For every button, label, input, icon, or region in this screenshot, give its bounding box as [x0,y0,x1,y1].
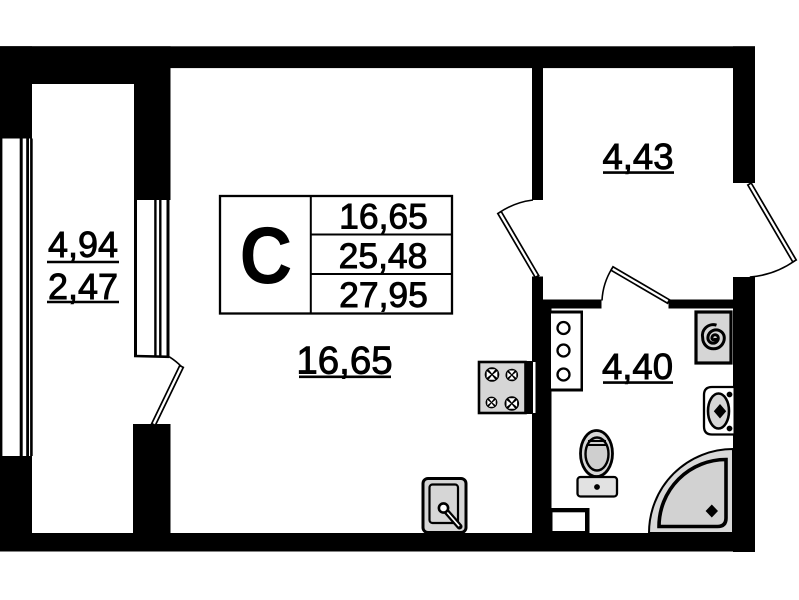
svg-text:16,65: 16,65 [339,197,428,237]
svg-text:27,95: 27,95 [339,275,428,315]
svg-text:25,48: 25,48 [339,236,428,276]
svg-text:C: C [240,210,293,300]
svg-text:4,94: 4,94 [48,224,118,265]
svg-text:4,43: 4,43 [602,136,673,177]
svg-text:4,40: 4,40 [602,346,673,387]
